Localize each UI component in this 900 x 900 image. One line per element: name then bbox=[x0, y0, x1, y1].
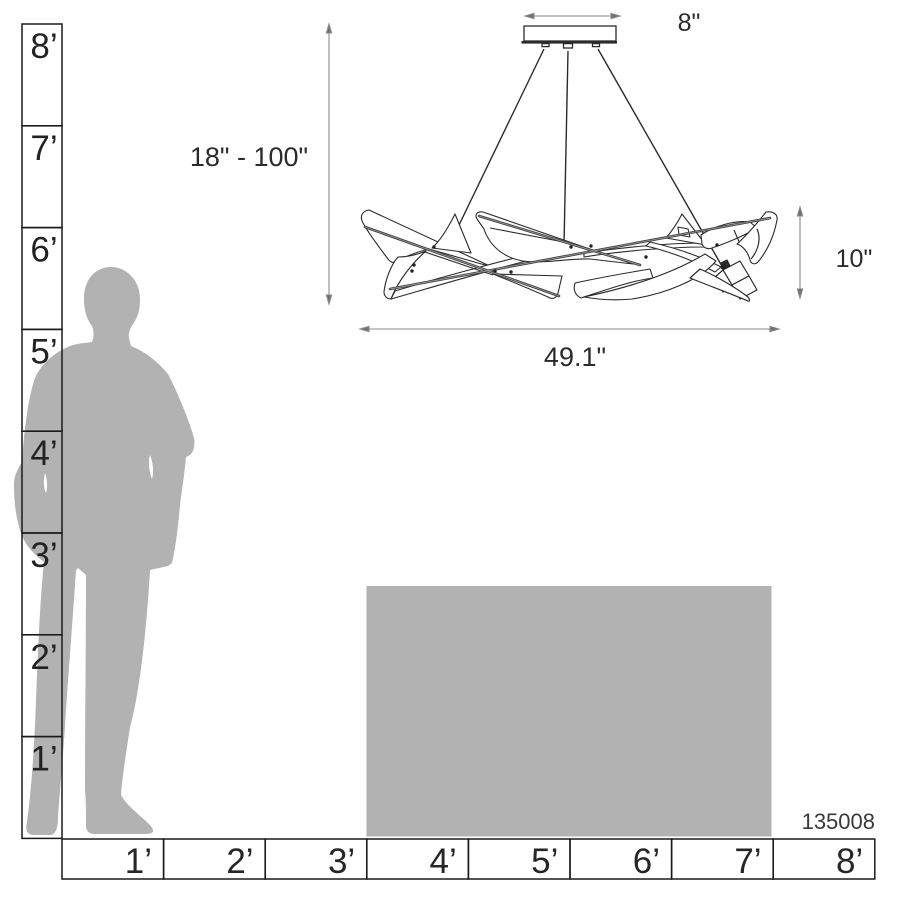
svg-text:135008: 135008 bbox=[802, 809, 875, 834]
svg-text:18" - 100": 18" - 100" bbox=[190, 142, 308, 172]
svg-text:5’: 5’ bbox=[30, 332, 57, 371]
svg-text:7’: 7’ bbox=[734, 842, 761, 881]
svg-text:8’: 8’ bbox=[30, 27, 57, 66]
svg-text:2’: 2’ bbox=[30, 638, 57, 677]
svg-text:4’: 4’ bbox=[430, 842, 457, 881]
svg-text:3’: 3’ bbox=[328, 842, 355, 881]
svg-text:2’: 2’ bbox=[226, 842, 253, 881]
svg-text:6’: 6’ bbox=[30, 231, 57, 270]
svg-text:10": 10" bbox=[836, 245, 873, 273]
svg-text:1’: 1’ bbox=[30, 740, 57, 779]
svg-text:3’: 3’ bbox=[30, 536, 57, 575]
svg-text:8": 8" bbox=[678, 9, 701, 37]
svg-text:8’: 8’ bbox=[836, 842, 863, 881]
svg-text:6’: 6’ bbox=[633, 842, 660, 881]
svg-text:5’: 5’ bbox=[531, 842, 558, 881]
svg-text:49.1": 49.1" bbox=[544, 342, 606, 372]
svg-text:7’: 7’ bbox=[30, 129, 57, 168]
svg-text:4’: 4’ bbox=[30, 434, 57, 473]
svg-text:1’: 1’ bbox=[125, 842, 152, 881]
